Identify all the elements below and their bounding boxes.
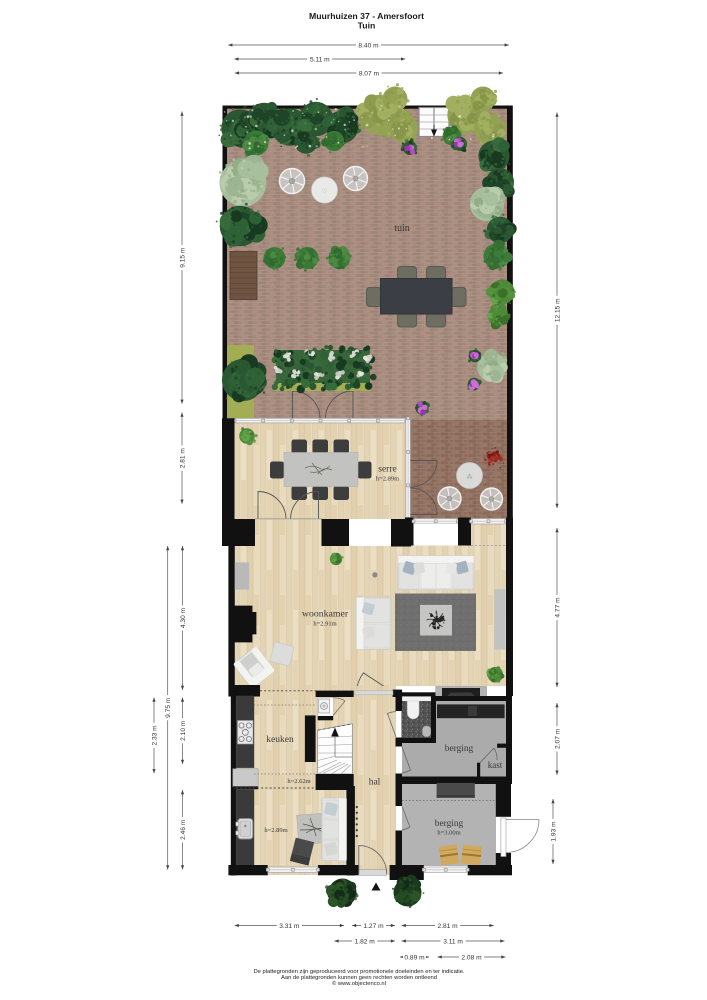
svg-text:8.40 m: 8.40 m [358, 42, 379, 49]
svg-text:2.07 m: 2.07 m [554, 728, 561, 749]
svg-text:12.15 m: 12.15 m [554, 298, 561, 322]
svg-text:h=2.91m: h=2.91m [313, 621, 336, 628]
svg-text:3.11 m: 3.11 m [443, 938, 463, 945]
svg-text:0.89 m: 0.89 m [404, 954, 425, 961]
svg-text:1.93 m: 1.93 m [550, 821, 557, 842]
svg-text:2.33 m: 2.33 m [151, 725, 158, 746]
svg-text:keuken: keuken [266, 735, 294, 745]
svg-text:kast: kast [488, 760, 503, 770]
svg-text:tuin: tuin [394, 223, 410, 234]
svg-text:4.30 m: 4.30 m [180, 607, 187, 628]
svg-text:serre: serre [378, 465, 396, 475]
svg-text:hal: hal [369, 778, 381, 788]
svg-text:h=3.00m: h=3.00m [437, 830, 460, 837]
svg-text:h=2.89m: h=2.89m [376, 476, 399, 483]
svg-text:2.81 m: 2.81 m [438, 923, 459, 930]
svg-text:2.10 m: 2.10 m [180, 720, 187, 741]
svg-text:Muurhuizen 37 - Amersfoort: Muurhuizen 37 - Amersfoort [309, 11, 424, 21]
svg-text:2.08 m: 2.08 m [461, 954, 482, 961]
svg-text:4.77 m: 4.77 m [554, 597, 561, 618]
svg-text:3.31 m: 3.31 m [279, 923, 300, 930]
svg-text:De plattegronden zijn geproduc: De plattegronden zijn geproduceerd voor … [253, 969, 464, 975]
svg-text:1.27 m: 1.27 m [363, 923, 384, 930]
svg-text:h=2.62m: h=2.62m [287, 778, 310, 785]
svg-text:h=2.89m: h=2.89m [264, 827, 287, 834]
svg-text:8.07 m: 8.07 m [359, 70, 380, 77]
svg-text:2.46 m: 2.46 m [180, 819, 187, 840]
svg-text:2.81 m: 2.81 m [179, 448, 186, 469]
svg-text:9.15 m: 9.15 m [179, 247, 186, 268]
svg-text:Tuin: Tuin [358, 21, 376, 31]
svg-text:1.82 m: 1.82 m [355, 938, 376, 945]
svg-text:5.11 m: 5.11 m [310, 56, 330, 63]
svg-text:berging: berging [435, 819, 464, 829]
svg-text:⁂: ⁂ [467, 475, 473, 481]
svg-text:Aan de plattegronden kunnen ge: Aan de plattegronden kunnen geen rechten… [281, 975, 437, 981]
svg-text:9.75 m: 9.75 m [165, 697, 172, 718]
svg-text:woonkamer: woonkamer [302, 609, 349, 620]
svg-text:© www.objectenco.nl: © www.objectenco.nl [332, 980, 386, 987]
svg-text:berging: berging [445, 744, 474, 754]
svg-text:♡: ♡ [322, 188, 327, 195]
